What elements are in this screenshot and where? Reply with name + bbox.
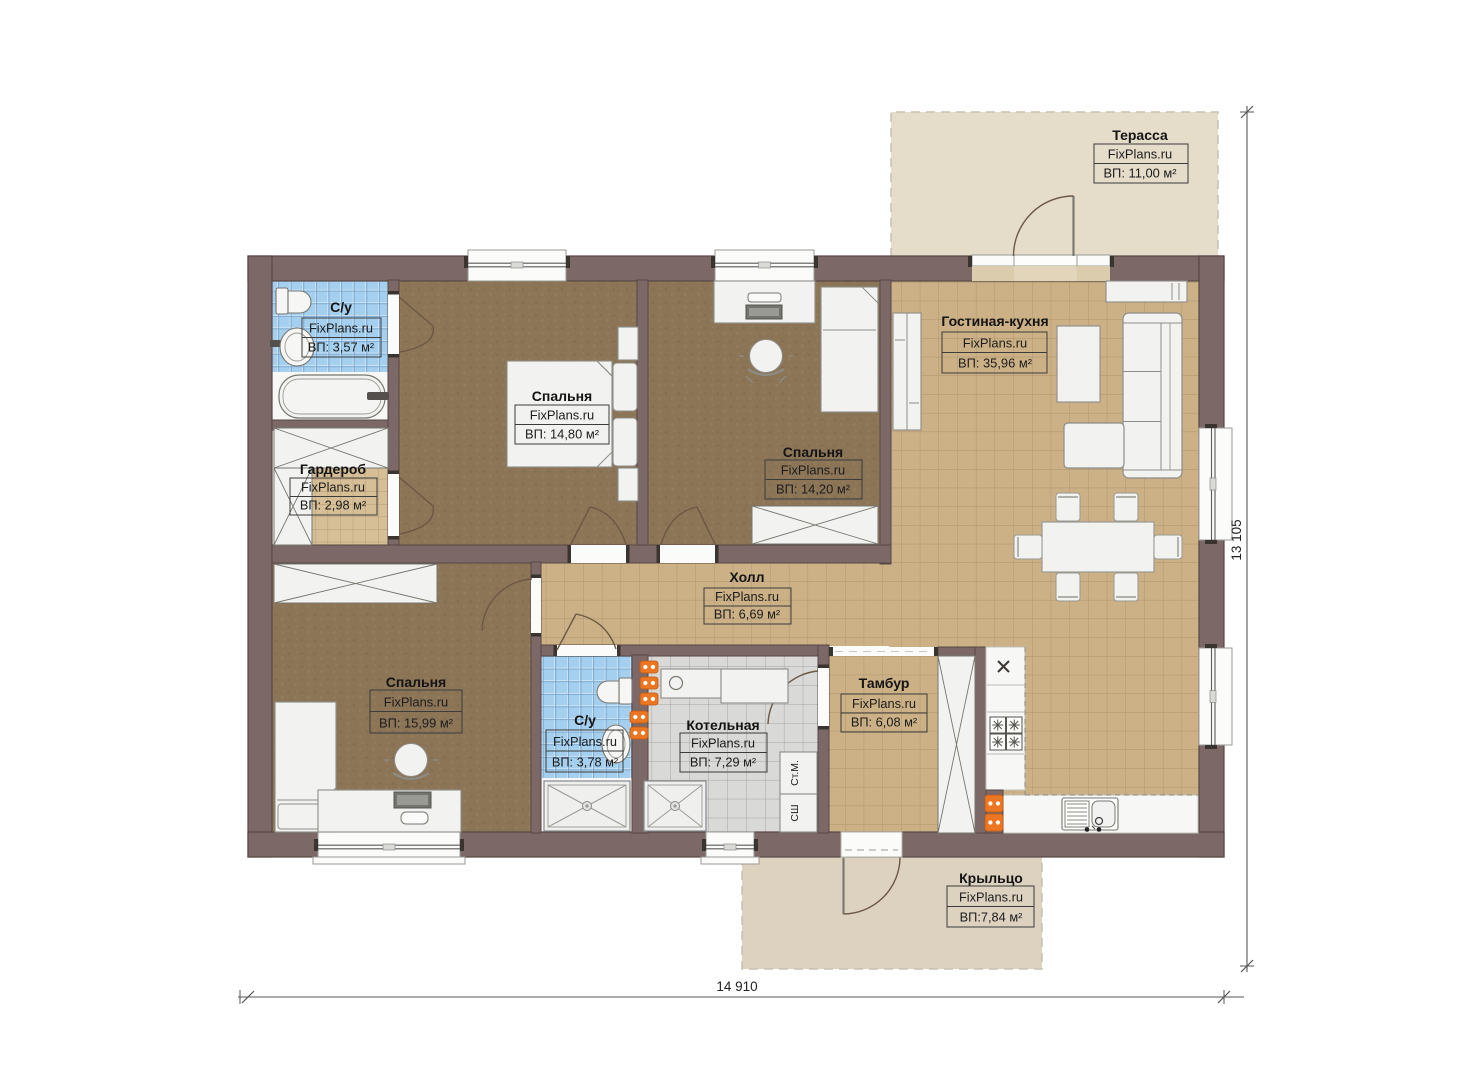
svg-text:Спальня: Спальня [783, 444, 843, 460]
svg-text:Холл: Холл [729, 569, 764, 585]
svg-text:Ст.М.: Ст.М. [789, 760, 801, 786]
svg-text:FixPlans.ru: FixPlans.ru [715, 589, 779, 604]
svg-text:С/у: С/у [330, 299, 352, 315]
svg-text:ВП: 6,08 м²: ВП: 6,08 м² [851, 715, 918, 730]
svg-text:FixPlans.ru: FixPlans.ru [963, 336, 1027, 351]
svg-text:FixPlans.ru: FixPlans.ru [553, 734, 617, 749]
svg-text:ВП: 2,98 м²: ВП: 2,98 м² [300, 498, 367, 513]
svg-text:ВП:7,84 м²: ВП:7,84 м² [960, 910, 1024, 925]
svg-text:13 105: 13 105 [1229, 519, 1244, 560]
svg-text:FixPlans.ru: FixPlans.ru [384, 695, 448, 710]
svg-text:ВП: 14,80 м²: ВП: 14,80 м² [525, 427, 600, 442]
svg-text:СШ: СШ [789, 804, 801, 821]
svg-text:ВП: 11,00 м²: ВП: 11,00 м² [1103, 166, 1177, 181]
svg-text:FixPlans.ru: FixPlans.ru [301, 480, 365, 495]
svg-text:FixPlans.ru: FixPlans.ru [852, 696, 916, 711]
svg-text:Тамбур: Тамбур [859, 675, 910, 691]
svg-text:ВП: 6,69 м²: ВП: 6,69 м² [714, 607, 781, 622]
svg-text:FixPlans.ru: FixPlans.ru [309, 321, 373, 336]
svg-text:Спальня: Спальня [532, 388, 592, 404]
svg-text:FixPlans.ru: FixPlans.ru [691, 736, 755, 751]
svg-text:С/у: С/у [574, 712, 596, 728]
svg-text:ВП: 3,57 м²: ВП: 3,57 м² [308, 340, 375, 355]
svg-text:FixPlans.ru: FixPlans.ru [959, 890, 1023, 905]
svg-text:Спальня: Спальня [386, 674, 446, 690]
svg-text:ВП: 7,29 м²: ВП: 7,29 м² [690, 755, 757, 770]
svg-text:FixPlans.ru: FixPlans.ru [530, 408, 594, 423]
svg-text:ВП: 35,96 м²: ВП: 35,96 м² [958, 356, 1033, 371]
svg-text:Гостиная-кухня: Гостиная-кухня [941, 313, 1048, 329]
svg-text:Крыльцо: Крыльцо [959, 870, 1023, 886]
svg-text:Гардероб: Гардероб [300, 461, 367, 477]
svg-text:ВП: 3,78 м²: ВП: 3,78 м² [552, 755, 619, 770]
svg-text:Котельная: Котельная [686, 717, 759, 733]
svg-text:Терасса: Терасса [1112, 127, 1168, 143]
svg-text:ВП: 14,20 м²: ВП: 14,20 м² [776, 482, 851, 497]
svg-text:FixPlans.ru: FixPlans.ru [781, 463, 845, 478]
svg-text:14 910: 14 910 [716, 979, 757, 994]
svg-text:ВП: 15,99 м²: ВП: 15,99 м² [379, 716, 454, 731]
svg-text:FixPlans.ru: FixPlans.ru [1108, 147, 1172, 162]
